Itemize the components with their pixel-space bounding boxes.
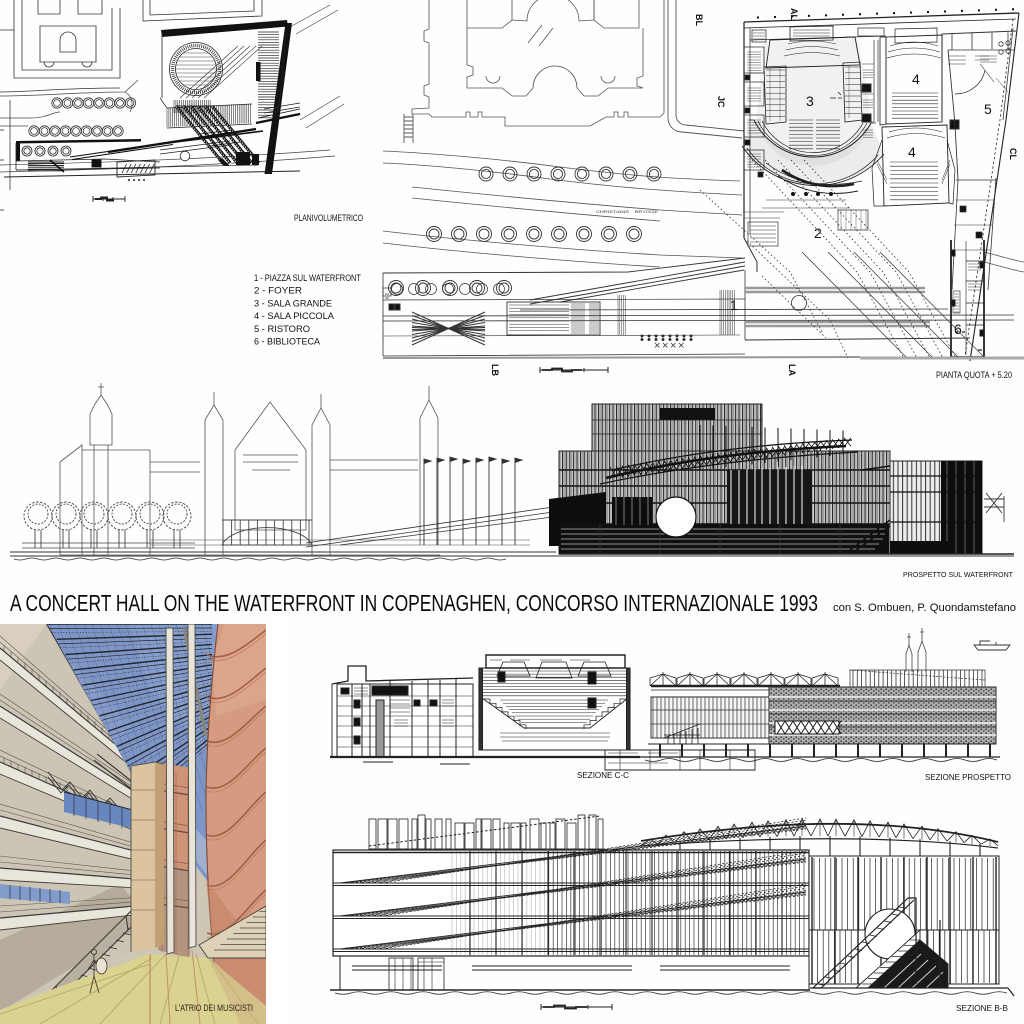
svg-text:CHRISTIANS BRYGGE: CHRISTIANS BRYGGE — [596, 209, 658, 214]
svg-text:CL: CL — [1008, 148, 1018, 160]
svg-text:3: 3 — [806, 93, 814, 109]
svg-text:SEZIONE B-B: SEZIONE B-B — [956, 1003, 1008, 1013]
svg-text:L'ATRIO DEI MUSICISTI: L'ATRIO DEI MUSICISTI — [175, 1003, 253, 1013]
svg-text:PROSPETTO SUL WATERFRONT: PROSPETTO SUL WATERFRONT — [903, 570, 1013, 579]
svg-text:4 - SALA PICCOLA: 4 - SALA PICCOLA — [254, 311, 334, 321]
svg-text:3 - SALA GRANDE: 3 - SALA GRANDE — [254, 298, 332, 308]
svg-text:5 - RISTORO: 5 - RISTORO — [254, 324, 310, 334]
svg-text:2 - FOYER: 2 - FOYER — [254, 286, 303, 296]
svg-text:6 - BIBLIOTECA: 6 - BIBLIOTECA — [254, 337, 320, 347]
svg-text:1: 1 — [730, 297, 738, 313]
svg-text:A CONCERT HALL ON THE WATERFRO: A CONCERT HALL ON THE WATERFRONT IN COPE… — [10, 590, 818, 616]
svg-text:6: 6 — [954, 321, 962, 337]
svg-text:LB: LB — [490, 364, 500, 376]
svg-text:4: 4 — [908, 144, 916, 160]
svg-text:AL: AL — [789, 8, 799, 20]
svg-text:BL: BL — [694, 14, 704, 26]
svg-text:1 - PIAZZA SUL WATERFRONT: 1 - PIAZZA SUL WATERFRONT — [254, 273, 361, 283]
svg-text:5: 5 — [984, 101, 992, 117]
svg-text:SEZIONE C-C: SEZIONE C-C — [577, 770, 629, 780]
svg-text:SEZIONE PROSPETTO: SEZIONE PROSPETTO — [925, 772, 1011, 782]
svg-text:PLANIVOLUMETRICO: PLANIVOLUMETRICO — [294, 213, 363, 224]
svg-text:con S. Ombuen, P. Quondamstefa: con S. Ombuen, P. Quondamstefano — [833, 602, 1016, 614]
svg-text:PIANTA QUOTA + 5.20: PIANTA QUOTA + 5.20 — [936, 370, 1012, 381]
svg-text:JC: JC — [716, 96, 726, 108]
svg-text:4: 4 — [912, 71, 920, 87]
svg-text:LA: LA — [787, 364, 797, 376]
